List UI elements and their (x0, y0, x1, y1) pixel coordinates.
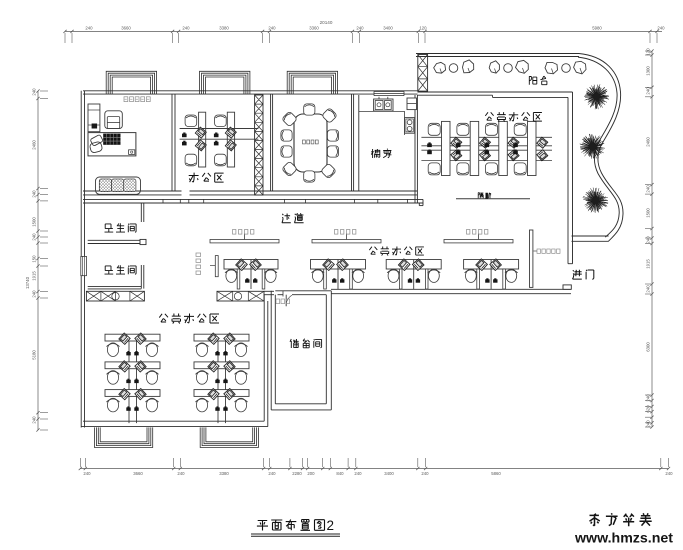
svg-text:240: 240 (32, 88, 37, 96)
svg-text:2460: 2460 (32, 140, 37, 150)
svg-text:3380: 3380 (219, 25, 229, 30)
svg-text:5180: 5180 (32, 350, 37, 360)
svg-text:240: 240 (657, 25, 665, 30)
svg-text:1915: 1915 (645, 259, 650, 269)
svg-text:3380: 3380 (219, 471, 229, 476)
svg-text:6300: 6300 (645, 342, 650, 352)
svg-text:240: 240 (645, 185, 650, 193)
svg-text:200: 200 (307, 471, 315, 476)
svg-text:240: 240 (177, 471, 185, 476)
svg-text:2: 2 (327, 518, 335, 533)
svg-text:240: 240 (665, 471, 673, 476)
svg-text:1915: 1915 (32, 271, 37, 281)
svg-text:240: 240 (645, 420, 650, 428)
svg-text:240: 240 (645, 394, 650, 402)
svg-text:240: 240 (268, 471, 276, 476)
svg-text:13740: 13740 (25, 276, 30, 289)
svg-text:240: 240 (354, 471, 362, 476)
svg-text:20140: 20140 (320, 20, 333, 25)
svg-text:3360: 3360 (309, 25, 319, 30)
svg-text:3660: 3660 (121, 25, 131, 30)
svg-text:5860: 5860 (491, 471, 501, 476)
svg-text:2280: 2280 (292, 471, 302, 476)
svg-text:240: 240 (32, 416, 37, 424)
svg-text:240: 240 (32, 190, 37, 198)
svg-text:840: 840 (336, 471, 344, 476)
svg-text:120: 120 (419, 25, 427, 30)
svg-text:www.hmzs.net: www.hmzs.net (574, 531, 673, 547)
svg-text:5980: 5980 (592, 25, 602, 30)
svg-text:240: 240 (182, 25, 190, 30)
svg-text:2460: 2460 (645, 137, 650, 147)
svg-text:240: 240 (268, 25, 276, 30)
svg-text:1500: 1500 (645, 208, 650, 218)
svg-text:240: 240 (85, 25, 93, 30)
svg-text:240: 240 (356, 25, 364, 30)
svg-text:1500: 1500 (32, 217, 37, 227)
svg-text:240: 240 (645, 236, 650, 244)
svg-text:240: 240 (421, 471, 429, 476)
svg-text:150: 150 (32, 255, 37, 263)
svg-text:240: 240 (645, 285, 650, 293)
svg-text:1300: 1300 (645, 66, 650, 76)
svg-text:240: 240 (645, 87, 650, 95)
svg-text:240: 240 (32, 290, 37, 298)
svg-text:3660: 3660 (133, 471, 143, 476)
svg-text:240: 240 (32, 233, 37, 241)
svg-text:3400: 3400 (384, 471, 394, 476)
svg-text:120: 120 (645, 48, 650, 56)
svg-text:240: 240 (83, 471, 91, 476)
svg-text:3400: 3400 (383, 25, 393, 30)
svg-text:620: 620 (645, 405, 650, 413)
